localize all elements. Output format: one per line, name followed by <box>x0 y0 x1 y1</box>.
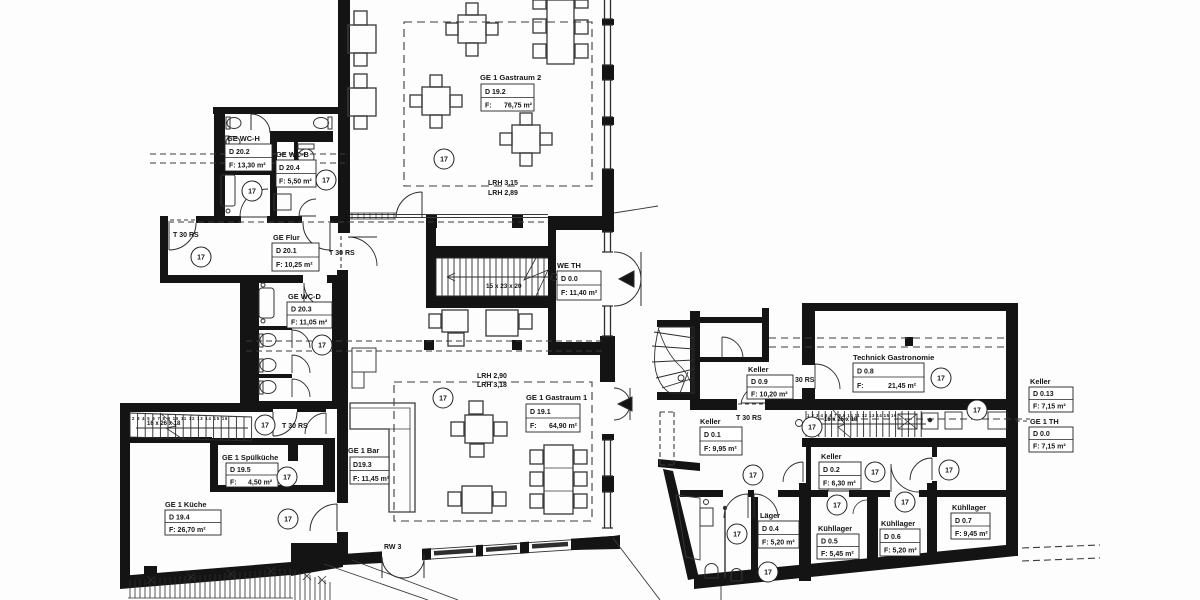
svg-text:Keller: Keller <box>748 365 769 374</box>
svg-text:17: 17 <box>973 408 981 415</box>
svg-text:17: 17 <box>937 376 945 383</box>
svg-text:F: 26,70 m²: F: 26,70 m² <box>169 527 206 534</box>
svg-text:17: 17 <box>283 475 291 482</box>
svg-text:GE 1 Küche: GE 1 Küche <box>165 500 206 509</box>
svg-text:17: 17 <box>197 255 205 262</box>
svg-text:WE TH: WE TH <box>557 261 581 270</box>
svg-text:F: 6,30 m²: F: 6,30 m² <box>823 481 856 488</box>
svg-text:30 RS: 30 RS <box>795 377 815 384</box>
svg-text:T 30 RS: T 30 RS <box>329 250 355 257</box>
svg-text:GE 1 Gastraum 2: GE 1 Gastraum 2 <box>480 73 541 82</box>
svg-text:GE WC-H: GE WC-H <box>227 134 260 143</box>
svg-text:D 0.7: D 0.7 <box>955 518 972 525</box>
svg-text:GE Flur: GE Flur <box>273 233 300 242</box>
svg-text:17: 17 <box>901 500 909 507</box>
svg-text:F: 5,45 m²: F: 5,45 m² <box>821 551 854 558</box>
svg-text:D 0.8: D 0.8 <box>857 369 874 376</box>
svg-text:T 30 RS: T 30 RS <box>173 232 199 239</box>
svg-text:T 30 RS: T 30 RS <box>282 423 308 430</box>
svg-text:RW 3: RW 3 <box>384 544 401 551</box>
svg-text:64,90 m²: 64,90 m² <box>549 423 578 430</box>
svg-text:D 0.5: D 0.5 <box>821 539 838 546</box>
svg-text:17: 17 <box>284 517 292 524</box>
svg-text:F: 11,45 m²: F: 11,45 m² <box>353 476 390 483</box>
svg-text:D19.3: D19.3 <box>353 462 372 469</box>
svg-text:D 20.2: D 20.2 <box>229 149 250 156</box>
svg-text:LRH 3,15: LRH 3,15 <box>488 180 518 187</box>
svg-text:17: 17 <box>808 425 816 432</box>
svg-text:17: 17 <box>439 396 447 403</box>
svg-text:D 0.2: D 0.2 <box>823 467 840 474</box>
svg-text:17: 17 <box>733 532 741 539</box>
svg-text:21,45 m²: 21,45 m² <box>888 383 917 390</box>
svg-text:D 20.3: D 20.3 <box>291 307 312 314</box>
svg-text:76,75 m²: 76,75 m² <box>504 103 533 110</box>
svg-text:F: 5,20 m²: F: 5,20 m² <box>884 548 917 555</box>
svg-text:F: 7,15 m²: F: 7,15 m² <box>1033 404 1066 411</box>
svg-text:17: 17 <box>248 189 256 196</box>
svg-text:17: 17 <box>764 570 772 577</box>
svg-text:F: 11,40 m²: F: 11,40 m² <box>561 290 598 297</box>
svg-text:F: 5,50 m²: F: 5,50 m² <box>279 179 312 186</box>
svg-text:Kühllager: Kühllager <box>818 524 852 533</box>
svg-text:D 0.6: D 0.6 <box>884 534 901 541</box>
svg-text:D 19.5: D 19.5 <box>230 467 251 474</box>
svg-text:LRH 2,90: LRH 2,90 <box>477 373 507 380</box>
svg-text:F:: F: <box>857 383 864 390</box>
svg-text:Keller: Keller <box>700 417 721 426</box>
svg-text:LRH 2,89: LRH 2,89 <box>488 190 518 197</box>
svg-text:17: 17 <box>749 473 757 480</box>
svg-text:F: 9,45 m²: F: 9,45 m² <box>955 531 988 538</box>
svg-text:D 0.1: D 0.1 <box>704 432 721 439</box>
svg-text:D 20.4: D 20.4 <box>279 165 300 172</box>
svg-text:GE 1 Gastraum 1: GE 1 Gastraum 1 <box>526 393 588 402</box>
svg-text:F: 11,05 m²: F: 11,05 m² <box>291 320 328 327</box>
svg-text:F: 10,25 m²: F: 10,25 m² <box>276 262 313 269</box>
svg-text:17: 17 <box>871 470 879 477</box>
svg-text:GE WC-B: GE WC-B <box>276 150 309 159</box>
svg-text:F:: F: <box>230 480 237 487</box>
svg-text:15 x 23 x 20: 15 x 23 x 20 <box>486 283 522 290</box>
svg-text:F: 10,20 m²: F: 10,20 m² <box>751 392 788 399</box>
svg-text:Keller: Keller <box>821 452 842 461</box>
svg-text:D 20.1: D 20.1 <box>276 248 297 255</box>
svg-text:LRH 3,18: LRH 3,18 <box>477 382 507 389</box>
svg-text:F: 5,20 m²: F: 5,20 m² <box>762 540 795 547</box>
svg-text:D 0.13: D 0.13 <box>1033 391 1054 398</box>
svg-text:Technick Gastronomie: Technick Gastronomie <box>853 353 934 362</box>
svg-text:D 0.0: D 0.0 <box>1033 431 1050 438</box>
svg-text:Läger: Läger <box>760 511 780 520</box>
svg-text:GE WC-D: GE WC-D <box>288 292 322 301</box>
svg-text:17: 17 <box>833 503 841 510</box>
svg-text:16 x 26 x 18: 16 x 26 x 18 <box>147 421 181 427</box>
svg-text:D 0.4: D 0.4 <box>762 526 779 533</box>
svg-text:T 30 RS: T 30 RS <box>736 415 762 422</box>
svg-text:17: 17 <box>945 468 953 475</box>
svg-text:D 19.1: D 19.1 <box>530 409 551 416</box>
svg-text:Keller: Keller <box>1030 377 1051 386</box>
svg-text:17: 17 <box>440 157 448 164</box>
svg-text:17: 17 <box>261 423 269 430</box>
svg-text:17: 17 <box>318 343 326 350</box>
svg-text:GE 1 Spülküche: GE 1 Spülküche <box>222 453 278 462</box>
svg-text:17: 17 <box>322 178 330 185</box>
svg-text:D 19.2: D 19.2 <box>485 89 506 96</box>
svg-text:F:: F: <box>530 423 537 430</box>
svg-text:F: 7,15 m²: F: 7,15 m² <box>1033 444 1066 451</box>
svg-text:D 0.9: D 0.9 <box>751 379 768 386</box>
svg-text:GE 1 TH: GE 1 TH <box>1030 417 1059 426</box>
svg-text:F:: F: <box>485 103 492 110</box>
svg-text:Kühllager: Kühllager <box>881 519 915 528</box>
svg-text:F: 9,95 m²: F: 9,95 m² <box>704 446 737 453</box>
svg-text:F: 13,30 m²: F: 13,30 m² <box>229 163 266 170</box>
svg-text:2 3 4 5 6 7 8 9 10 11 12 13 14: 2 3 4 5 6 7 8 9 10 11 12 13 14 15 16 <box>132 416 228 421</box>
svg-text:1 2 3 4 5 6 7 8 9 10 11 12 13: 1 2 3 4 5 6 7 8 9 10 11 12 13 14 15 16 <box>807 413 897 418</box>
svg-text:Kühllager: Kühllager <box>952 503 986 512</box>
svg-text:GE 1 Bar: GE 1 Bar <box>348 446 379 455</box>
svg-text:D 0.0: D 0.0 <box>561 276 578 283</box>
svg-text:D 19.4: D 19.4 <box>169 515 190 522</box>
svg-text:4,50 m²: 4,50 m² <box>248 480 273 487</box>
